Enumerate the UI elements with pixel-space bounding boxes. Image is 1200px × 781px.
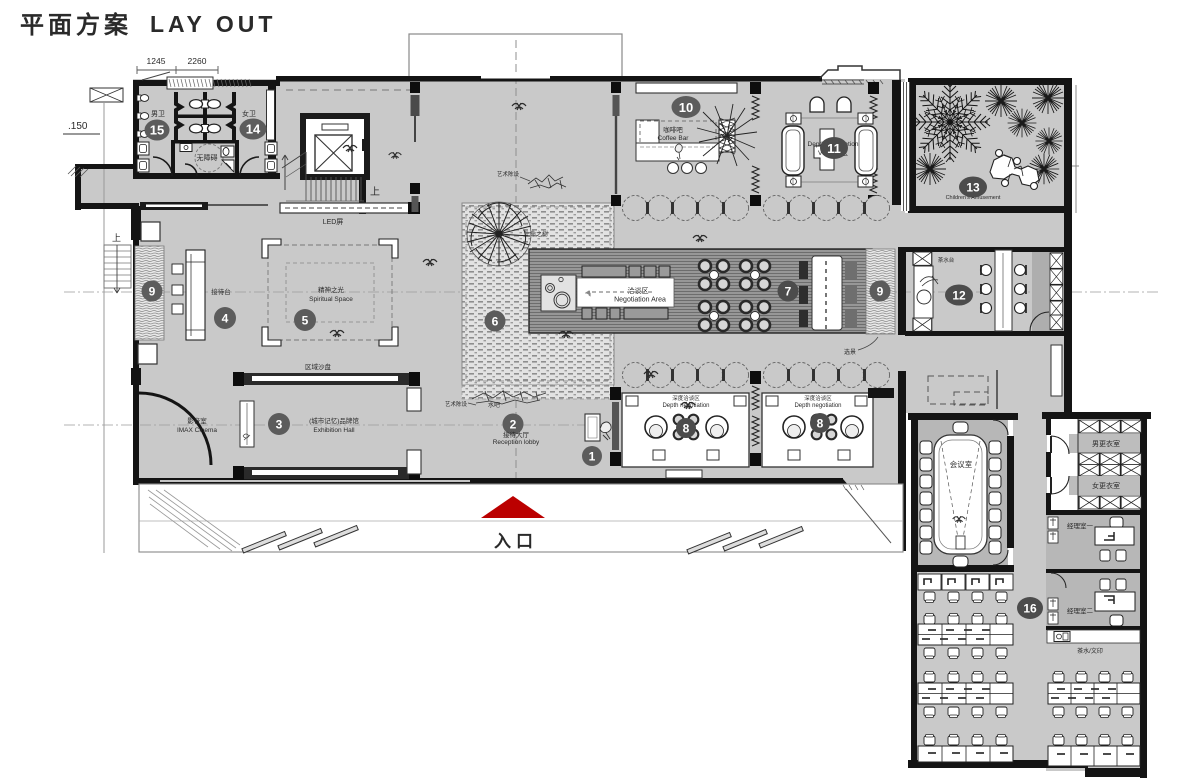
svg-text:女卫: 女卫	[242, 109, 256, 118]
svg-text:选景: 选景	[844, 348, 856, 356]
svg-text:2260: 2260	[188, 56, 207, 66]
svg-text:LAY OUT: LAY OUT	[150, 11, 276, 37]
svg-text:5: 5	[302, 314, 309, 328]
svg-text:Spiritual Space: Spiritual Space	[309, 296, 353, 303]
svg-text:男卫: 男卫	[151, 110, 165, 118]
svg-text:女更衣室: 女更衣室	[1092, 481, 1120, 490]
svg-text:12: 12	[952, 289, 966, 303]
svg-text:15: 15	[150, 123, 164, 138]
svg-text:上: 上	[112, 233, 121, 243]
svg-text:精神之光: 精神之光	[318, 285, 345, 294]
svg-text:经理室二: 经理室二	[1067, 606, 1094, 615]
svg-text:入口: 入口	[494, 532, 538, 551]
svg-text:8: 8	[683, 422, 690, 436]
svg-text:接待台: 接待台	[211, 287, 231, 296]
svg-text:咖啡吧: 咖啡吧	[663, 125, 683, 134]
svg-text:6: 6	[492, 315, 499, 329]
svg-text:.150: .150	[68, 121, 88, 132]
svg-text:茶水/文印: 茶水/文印	[1077, 647, 1103, 655]
svg-text:11: 11	[827, 141, 841, 156]
svg-text:4: 4	[222, 312, 229, 326]
svg-text:7: 7	[785, 285, 792, 299]
svg-text:10: 10	[679, 100, 693, 115]
svg-text:艺术陈设: 艺术陈设	[445, 400, 468, 408]
svg-text:Coffee Bar: Coffee Bar	[658, 135, 690, 142]
svg-text:艺术陈设: 艺术陈设	[497, 170, 520, 178]
svg-text:生命之树: 生命之树	[524, 230, 548, 238]
svg-text:1: 1	[589, 450, 596, 464]
svg-text:16: 16	[1023, 602, 1037, 616]
svg-text:13: 13	[966, 181, 980, 195]
svg-text:IMAX Cinema: IMAX Cinema	[177, 427, 217, 434]
svg-text:接待大厅: 接待大厅	[503, 430, 530, 439]
svg-text:Reception lobby: Reception lobby	[493, 439, 540, 446]
svg-text:14: 14	[246, 122, 261, 137]
svg-text:深度洽谈区: 深度洽谈区	[804, 394, 832, 402]
svg-text:洽谈区: 洽谈区	[628, 286, 649, 295]
svg-text:2: 2	[510, 418, 517, 432]
svg-text:影音室: 影音室	[187, 416, 207, 425]
svg-text:男更衣室: 男更衣室	[1092, 439, 1120, 448]
svg-text:无障碍: 无障碍	[197, 153, 218, 162]
svg-text:Exhibition Hall: Exhibition Hall	[313, 427, 355, 434]
svg-text:(城市记忆)品牌馆: (城市记忆)品牌馆	[309, 416, 359, 425]
svg-text:Depth negotiation: Depth negotiation	[794, 403, 841, 409]
svg-text:LED屏: LED屏	[323, 218, 344, 226]
svg-text:上: 上	[370, 186, 380, 198]
svg-text:1245: 1245	[147, 56, 166, 66]
svg-text:3: 3	[276, 418, 283, 432]
svg-text:Negotiation Area: Negotiation Area	[614, 297, 666, 304]
svg-text:会议室: 会议室	[950, 459, 973, 469]
svg-text:8: 8	[817, 417, 824, 431]
svg-text:深度洽谈区: 深度洽谈区	[672, 394, 700, 402]
svg-text:区域沙盘: 区域沙盘	[305, 362, 332, 371]
svg-text:9: 9	[149, 285, 156, 299]
svg-text:平面方案: 平面方案	[20, 11, 132, 39]
svg-text:9: 9	[877, 285, 884, 299]
svg-text:经理室一: 经理室一	[1067, 521, 1094, 530]
svg-text:茶水台: 茶水台	[938, 256, 955, 264]
